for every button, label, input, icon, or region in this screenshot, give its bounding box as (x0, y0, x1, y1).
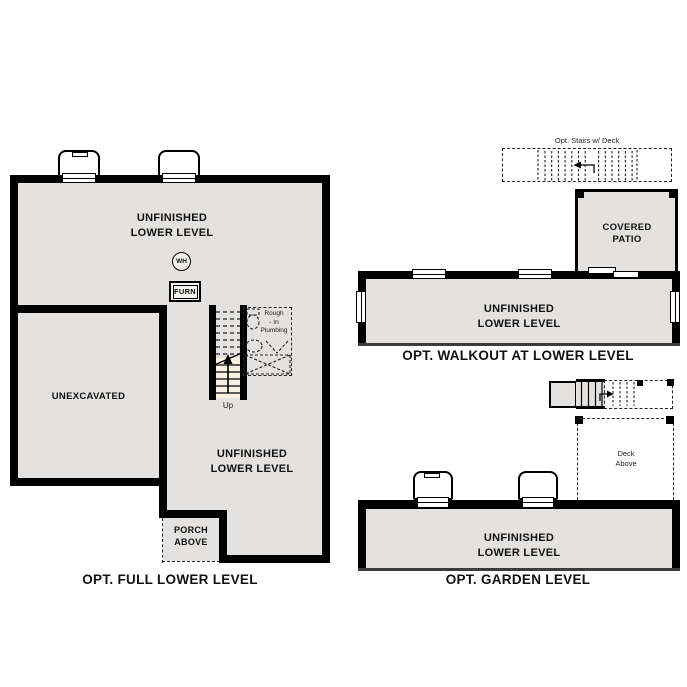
wall (219, 555, 330, 563)
deck-post (666, 416, 674, 424)
window (356, 291, 366, 323)
stair-wall (209, 305, 216, 400)
window-well (518, 471, 558, 500)
room-label-unexcavated: UNEXCAVATED (18, 390, 159, 405)
furnace-symbol: FURN (169, 281, 201, 302)
wall (322, 175, 330, 563)
wall (672, 500, 680, 568)
deck-post (637, 380, 643, 386)
window-well-ledge (424, 473, 440, 478)
patio-door-panel (588, 267, 616, 274)
window (518, 269, 552, 279)
caption-walkout: OPT. WALKOUT AT LOWER LEVEL (354, 348, 682, 363)
deck-above-label: Deck Above (592, 449, 660, 468)
rough-in-plumbing-label: Rough - In Plumbing (256, 310, 292, 336)
opt-stairs-note: Opt. Stairs w/ Deck (502, 136, 672, 145)
foundation-cut-line (358, 343, 680, 346)
caption-garden-level: OPT. GARDEN LEVEL (354, 572, 682, 587)
room-label-unfinished-upper: UNFINISHED LOWER LEVEL (92, 211, 252, 240)
furnace-label: FURN (173, 285, 198, 299)
window (62, 173, 96, 183)
stairs-up-label: Up (214, 401, 242, 410)
room-label-garden-unfinished: UNFINISHED LOWER LEVEL (389, 531, 649, 560)
window-well-ledge (72, 152, 88, 157)
window (522, 497, 554, 508)
wall (163, 510, 227, 518)
window (162, 173, 196, 183)
wall (10, 175, 18, 486)
room-label-walkout-unfinished: UNFINISHED LOWER LEVEL (389, 302, 649, 331)
opt-deck-stairs-dashed (502, 148, 672, 182)
wall (358, 500, 366, 568)
stair-solid-flight (576, 379, 605, 409)
foundation-cut-line (358, 568, 680, 571)
window (417, 497, 449, 508)
wall (358, 500, 680, 509)
room-label-unfinished-lower: UNFINISHED LOWER LEVEL (172, 447, 332, 476)
wall (159, 305, 167, 518)
porch-dashed-edge (162, 561, 220, 562)
patio-post (669, 189, 678, 198)
stair-lower-flight (216, 358, 240, 398)
patio-door-panel (613, 271, 639, 278)
stair-landing (549, 381, 577, 408)
deck-post (575, 416, 583, 424)
caption-full-lower-level: OPT. FULL LOWER LEVEL (8, 572, 332, 587)
deck-post (667, 379, 674, 386)
room-label-porch-above: PORCH ABOVE (163, 525, 219, 548)
wall (10, 478, 167, 486)
window (412, 269, 446, 279)
wall (10, 305, 167, 313)
window (670, 291, 680, 323)
patio-post (575, 189, 584, 198)
room-label-covered-patio: COVERED PATIO (585, 222, 669, 246)
floorplan-sheet: UNFINISHED LOWER LEVEL WH FURN UNEXCAVAT… (0, 0, 687, 687)
water-heater-symbol: WH (172, 252, 191, 271)
water-heater-label: WH (176, 258, 187, 265)
